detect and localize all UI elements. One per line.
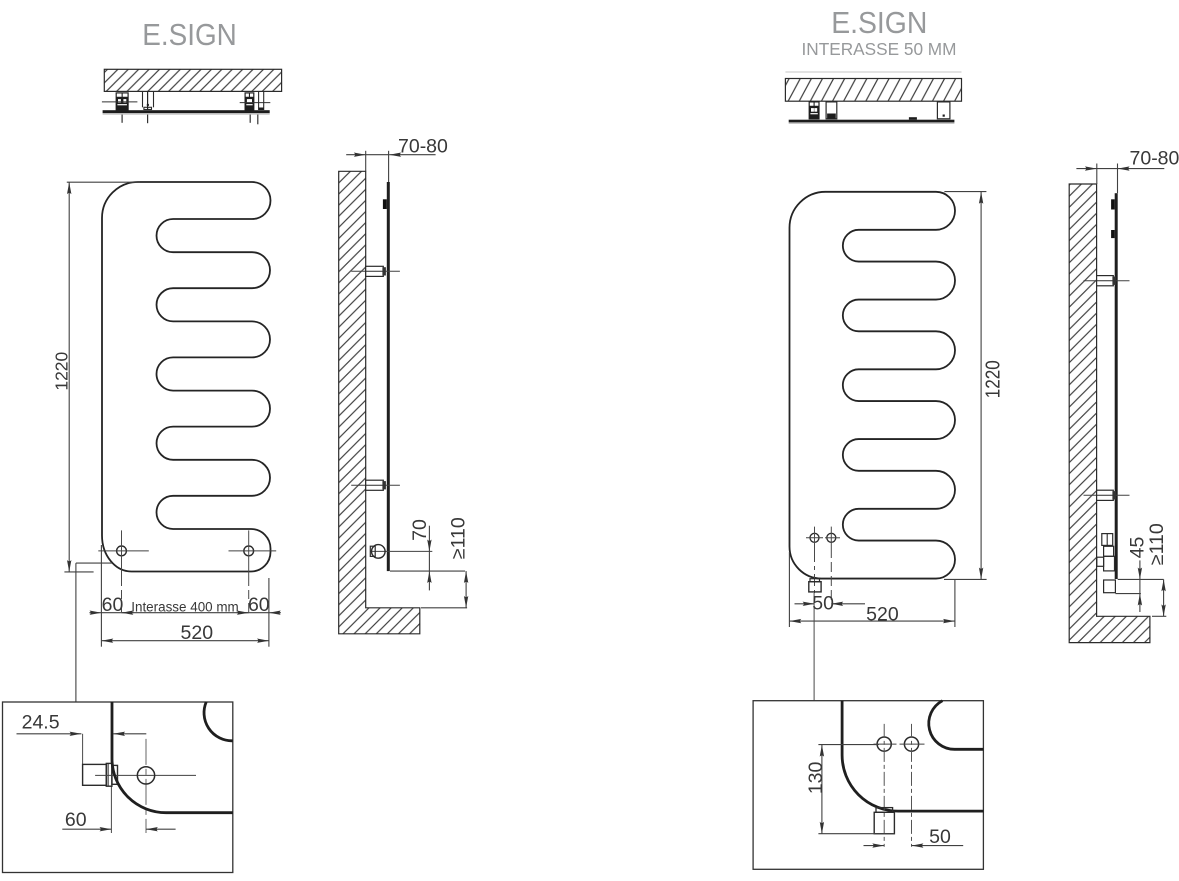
svg-text:E.SIGN: E.SIGN (142, 17, 237, 52)
svg-text:E.SIGN: E.SIGN (831, 5, 927, 40)
svg-text:130: 130 (805, 761, 827, 794)
svg-text:70-80: 70-80 (398, 136, 448, 158)
svg-text:70-80: 70-80 (1130, 148, 1179, 170)
svg-text:1220: 1220 (982, 360, 1004, 398)
svg-text:≥110: ≥110 (448, 517, 470, 559)
svg-text:60: 60 (102, 594, 124, 616)
svg-text:50: 50 (812, 593, 834, 615)
svg-text:70: 70 (409, 519, 431, 541)
svg-text:60: 60 (248, 594, 270, 616)
svg-text:INTERASSE 50 MM: INTERASSE 50 MM (802, 39, 957, 59)
svg-text:520: 520 (181, 622, 214, 644)
svg-text:520: 520 (866, 604, 899, 626)
svg-text:≥110: ≥110 (1146, 523, 1168, 565)
svg-text:24.5: 24.5 (22, 712, 60, 734)
svg-text:60: 60 (65, 809, 87, 831)
svg-text:1220: 1220 (51, 351, 71, 390)
svg-text:50: 50 (929, 826, 951, 848)
svg-text:Interasse 400 mm: Interasse 400 mm (131, 600, 239, 615)
